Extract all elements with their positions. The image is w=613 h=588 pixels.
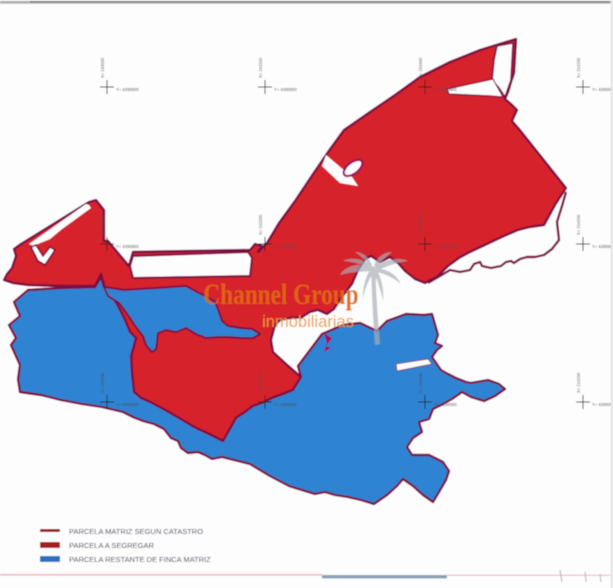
svg-text:Y= 4298800: Y= 4298800 bbox=[592, 244, 613, 249]
svg-text:PARCELA RESTANTE DE FINCA MATR: PARCELA RESTANTE DE FINCA MATRIZ bbox=[69, 555, 211, 564]
svg-text:Y= 4299000: Y= 4299000 bbox=[116, 402, 139, 407]
svg-text:PARCELA A SEGREGAR: PARCELA A SEGREGAR bbox=[69, 541, 154, 550]
svg-text:PARCELA MATRIZ SEGUN CATASTRO: PARCELA MATRIZ SEGUN CATASTRO bbox=[69, 527, 203, 536]
svg-text:X= 243000: X= 243000 bbox=[100, 57, 105, 78]
svg-text:X= 243400: X= 243400 bbox=[418, 214, 423, 235]
svg-text:X= 243400: X= 243400 bbox=[418, 57, 423, 78]
svg-text:Y= 4298600: Y= 4298600 bbox=[592, 87, 613, 92]
svg-text:Y= 4298600: Y= 4298600 bbox=[274, 87, 297, 92]
svg-text:X= 243200: X= 243200 bbox=[258, 372, 263, 393]
svg-text:Channel Group: Channel Group bbox=[203, 277, 358, 311]
svg-text:Y= 4298600: Y= 4298600 bbox=[116, 87, 139, 92]
svg-text:X= 243200: X= 243200 bbox=[258, 214, 263, 235]
svg-text:X= 243000: X= 243000 bbox=[100, 214, 105, 235]
svg-text:Y= 4298800: Y= 4298800 bbox=[116, 244, 139, 249]
svg-text:X= 214200: X= 214200 bbox=[576, 214, 581, 235]
svg-text:inmobiliarias: inmobiliarias bbox=[262, 313, 354, 331]
svg-text:X= 214200: X= 214200 bbox=[576, 372, 581, 393]
svg-text:Y= 4299000: Y= 4299000 bbox=[434, 402, 457, 407]
svg-text:X= 214200: X= 214200 bbox=[576, 57, 581, 78]
svg-text:Y= 4299000: Y= 4299000 bbox=[274, 402, 297, 407]
svg-text:Y= 4298800: Y= 4298800 bbox=[274, 244, 297, 249]
svg-text:Y= 4298600: Y= 4298600 bbox=[434, 87, 457, 92]
svg-text:X= 243200: X= 243200 bbox=[258, 57, 263, 78]
svg-text:Y= 4298800: Y= 4298800 bbox=[434, 244, 457, 249]
svg-text:X= 243400: X= 243400 bbox=[418, 372, 423, 393]
svg-text:Y= 4299000: Y= 4299000 bbox=[592, 402, 613, 407]
svg-text:X= 243000: X= 243000 bbox=[100, 372, 105, 393]
